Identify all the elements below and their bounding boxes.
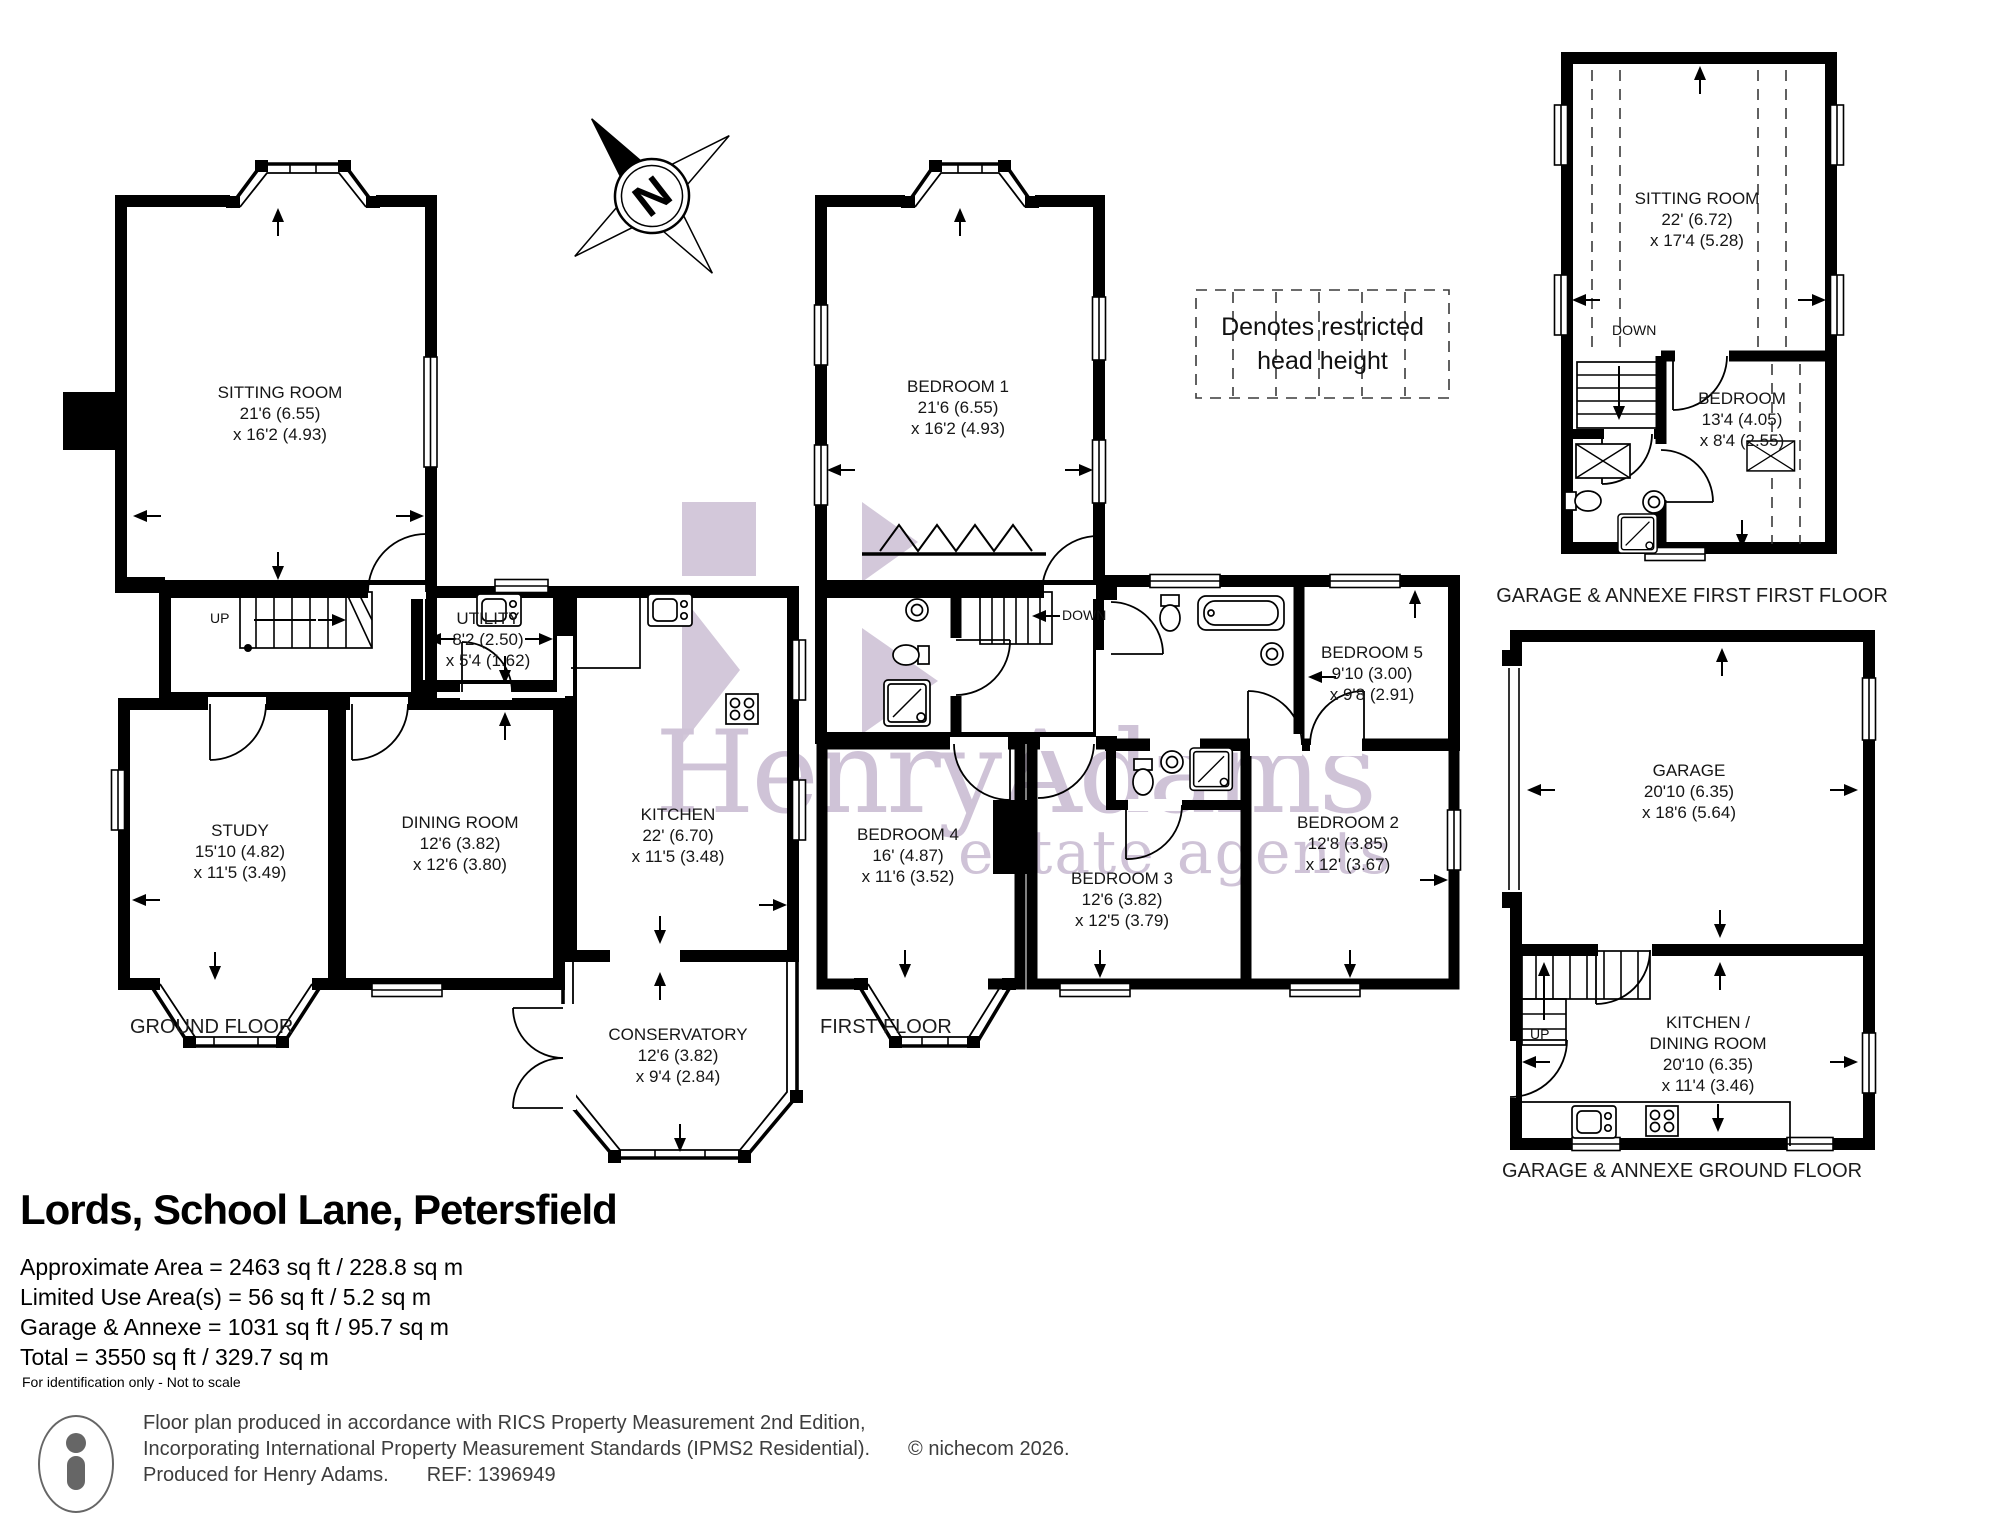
room-name: GARAGE <box>1642 760 1736 781</box>
room-dim: x 12'5 (3.79) <box>1071 910 1173 931</box>
room-name: KITCHEN / <box>1649 1012 1766 1033</box>
room-dim: x 9'4 (2.84) <box>608 1066 747 1087</box>
room-dim: x 11'6 (3.52) <box>857 866 959 887</box>
room-name: SITTING ROOM <box>218 382 343 403</box>
page-title: Lords, School Lane, Petersfield <box>20 1186 617 1234</box>
room-name: CONSERVATORY <box>608 1024 747 1045</box>
footer-line: Incorporating International Property Mea… <box>143 1436 1070 1462</box>
footer: Floor plan produced in accordance with R… <box>143 1410 1070 1488</box>
room-dim: 12'6 (3.82) <box>608 1045 747 1066</box>
ground-floor-plan <box>63 160 806 1163</box>
room-name: UTILITY <box>446 608 531 629</box>
disclaimer: For identification only - Not to scale <box>22 1374 241 1390</box>
annexe-first-floor-plan <box>1555 58 1844 561</box>
stairs-up-label-ground: UP <box>210 610 229 626</box>
room-dim: 16' (4.87) <box>857 845 959 866</box>
area-line: Limited Use Area(s) = 56 sq ft / 5.2 sq … <box>20 1282 617 1312</box>
footer-copyright: © nichecom 2026. <box>908 1436 1070 1462</box>
room-name: DINING ROOM <box>401 812 518 833</box>
room-dim: x 18'6 (5.64) <box>1642 802 1736 823</box>
room-dim: 21'6 (6.55) <box>907 397 1009 418</box>
room-dim: 22' (6.70) <box>632 825 725 846</box>
footer-line: Floor plan produced in accordance with R… <box>143 1410 1070 1436</box>
stairs-down-label-annexe-first: DOWN <box>1612 322 1656 338</box>
room-label-bedroom-3: BEDROOM 3 12'6 (3.82) x 12'5 (3.79) <box>1071 868 1173 931</box>
room-dim: x 11'4 (3.46) <box>1649 1075 1766 1096</box>
room-label-bedroom-5: BEDROOM 5 9'10 (3.00) x 9'8 (2.91) <box>1321 642 1423 705</box>
room-dim: x 9'8 (2.91) <box>1321 684 1423 705</box>
room-dim: x 12'6 (3.80) <box>401 854 518 875</box>
compass-icon: N <box>514 58 789 333</box>
room-dim: x 11'5 (3.48) <box>632 846 725 867</box>
room-name: BEDROOM 3 <box>1071 868 1173 889</box>
legend-line: head height <box>1257 344 1388 378</box>
room-label-sitting-room: SITTING ROOM 21'6 (6.55) x 16'2 (4.93) <box>218 382 343 445</box>
room-label-dining-room: DINING ROOM 12'6 (3.82) x 12'6 (3.80) <box>401 812 518 875</box>
room-dim: x 16'2 (4.93) <box>907 418 1009 439</box>
legend-line: Denotes restricted <box>1221 310 1424 344</box>
room-name: BEDROOM 2 <box>1297 812 1399 833</box>
floor-label-annexe-ground: GARAGE & ANNEXE GROUND FLOOR <box>1502 1160 1862 1183</box>
area-summary: Approximate Area = 2463 sq ft / 228.8 sq… <box>20 1252 617 1372</box>
room-label-bedroom-4: BEDROOM 4 16' (4.87) x 11'6 (3.52) <box>857 824 959 887</box>
footer-standards: Incorporating International Property Mea… <box>143 1438 870 1460</box>
room-dim: 21'6 (6.55) <box>218 403 343 424</box>
restricted-head-height-legend: Denotes restricted head height <box>1196 290 1449 398</box>
room-dim: x 11'5 (3.49) <box>194 862 287 883</box>
room-dim: 22' (6.72) <box>1635 209 1760 230</box>
room-dim: 13'4 (4.05) <box>1698 409 1786 430</box>
room-name: KITCHEN <box>632 804 725 825</box>
area-line: Total = 3550 sq ft / 329.7 sq m <box>20 1342 617 1372</box>
footer-ref: REF: 1396949 <box>427 1462 556 1488</box>
area-line: Approximate Area = 2463 sq ft / 228.8 sq… <box>20 1252 617 1282</box>
stairs-up-label-annexe-ground: UP <box>1530 1026 1549 1042</box>
room-name: STUDY <box>194 820 287 841</box>
room-dim: 20'10 (6.35) <box>1649 1054 1766 1075</box>
room-label-annexe-sitting-room: SITTING ROOM 22' (6.72) x 17'4 (5.28) <box>1635 188 1760 251</box>
room-label-annexe-kitchen-dining: KITCHEN / DINING ROOM 20'10 (6.35) x 11'… <box>1649 1012 1766 1096</box>
person-icon <box>39 1416 113 1512</box>
room-label-utility: UTILITY 8'2 (2.50) x 5'4 (1.62) <box>446 608 531 671</box>
room-name: DINING ROOM <box>1649 1033 1766 1054</box>
room-dim: 12'8 (3.85) <box>1297 833 1399 854</box>
room-name: BEDROOM 1 <box>907 376 1009 397</box>
room-dim: 15'10 (4.82) <box>194 841 287 862</box>
room-dim: x 8'4 (2.55) <box>1698 430 1786 451</box>
room-label-bedroom-2: BEDROOM 2 12'8 (3.85) x 12' (3.67) <box>1297 812 1399 875</box>
room-dim: 12'6 (3.82) <box>1071 889 1173 910</box>
footer-line: Produced for Henry Adams.REF: 1396949 <box>143 1462 1070 1488</box>
floor-label-ground: GROUND FLOOR <box>130 1016 293 1039</box>
floorplan-page: HenryAdams estate agents <box>0 0 2000 1521</box>
room-label-conservatory: CONSERVATORY 12'6 (3.82) x 9'4 (2.84) <box>608 1024 747 1087</box>
area-line: Garage & Annexe = 1031 sq ft / 95.7 sq m <box>20 1312 617 1342</box>
footer-produced-for: Produced for Henry Adams. <box>143 1464 389 1486</box>
room-label-annexe-bedroom: BEDROOM 13'4 (4.05) x 8'4 (2.55) <box>1698 388 1786 451</box>
room-dim: 12'6 (3.82) <box>401 833 518 854</box>
room-dim: x 16'2 (4.93) <box>218 424 343 445</box>
room-label-bedroom-1: BEDROOM 1 21'6 (6.55) x 16'2 (4.93) <box>907 376 1009 439</box>
room-dim: 8'2 (2.50) <box>446 629 531 650</box>
stairs-down-label-first: DOWN <box>1062 607 1106 623</box>
room-name: BEDROOM 4 <box>857 824 959 845</box>
room-dim: 9'10 (3.00) <box>1321 663 1423 684</box>
room-dim: 20'10 (6.35) <box>1642 781 1736 802</box>
floor-label-first: FIRST FLOOR <box>820 1016 952 1039</box>
room-dim: x 12' (3.67) <box>1297 854 1399 875</box>
floor-label-annexe-first: GARAGE & ANNEXE FIRST FIRST FLOOR <box>1496 585 1888 608</box>
room-dim: x 5'4 (1.62) <box>446 650 531 671</box>
room-dim: x 17'4 (5.28) <box>1635 230 1760 251</box>
title-block: Lords, School Lane, Petersfield Approxim… <box>20 1186 617 1372</box>
room-label-kitchen: KITCHEN 22' (6.70) x 11'5 (3.48) <box>632 804 725 867</box>
room-label-garage: GARAGE 20'10 (6.35) x 18'6 (5.64) <box>1642 760 1736 823</box>
room-name: SITTING ROOM <box>1635 188 1760 209</box>
room-name: BEDROOM 5 <box>1321 642 1423 663</box>
room-name: BEDROOM <box>1698 388 1786 409</box>
room-label-study: STUDY 15'10 (4.82) x 11'5 (3.49) <box>194 820 287 883</box>
